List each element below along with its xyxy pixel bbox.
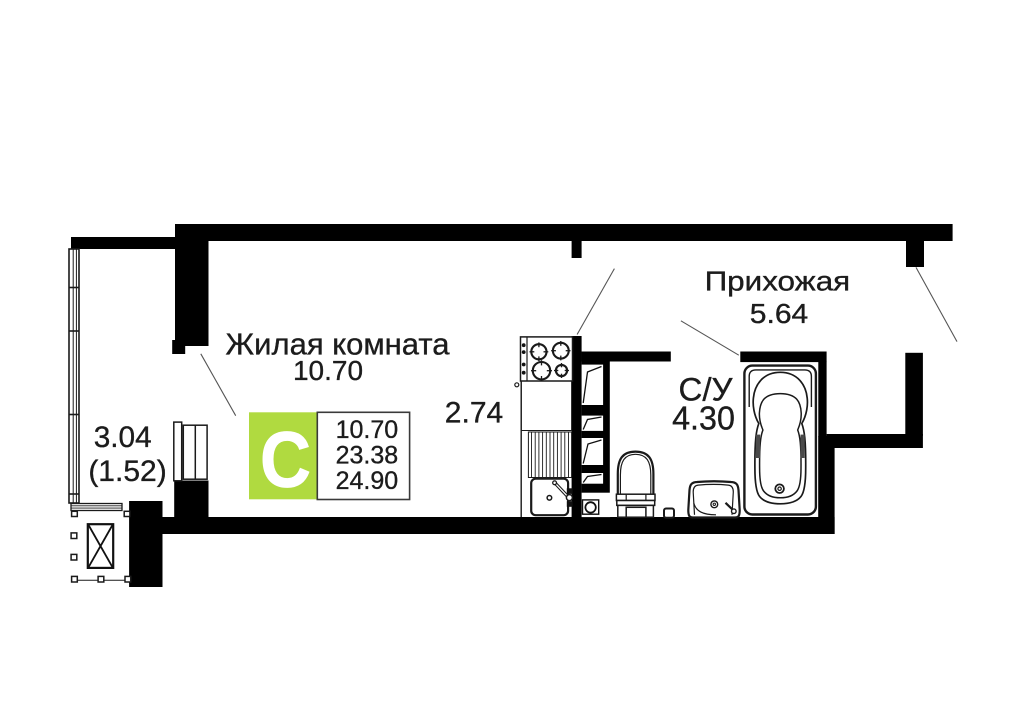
svg-text:С: С: [260, 415, 311, 504]
svg-text:10.70: 10.70: [293, 355, 363, 386]
svg-text:24.90: 24.90: [336, 467, 399, 495]
svg-text:10.70: 10.70: [336, 416, 399, 444]
svg-text:Прихожая: Прихожая: [705, 266, 851, 297]
svg-text:23.38: 23.38: [336, 441, 399, 469]
svg-text:2.74: 2.74: [445, 396, 503, 429]
svg-text:(1.52): (1.52): [88, 455, 166, 488]
svg-text:4.30: 4.30: [672, 400, 735, 437]
svg-text:3.04: 3.04: [94, 421, 152, 454]
svg-text:5.64: 5.64: [750, 298, 809, 329]
